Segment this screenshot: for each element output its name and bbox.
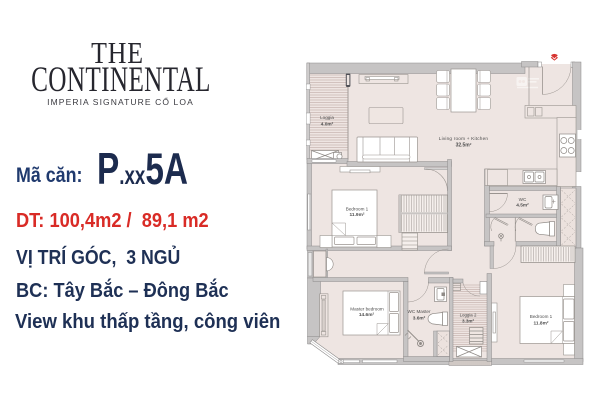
- svg-text:Loggia 2: Loggia 2: [460, 313, 477, 318]
- svg-text:3.3m²: 3.3m²: [462, 319, 474, 324]
- svg-text:Bedroom 1: Bedroom 1: [530, 314, 553, 319]
- svg-text:Master bedroom: Master bedroom: [350, 306, 384, 311]
- svg-text:11.9m²: 11.9m²: [350, 212, 365, 218]
- svg-text:Bedroom 1: Bedroom 1: [346, 207, 369, 212]
- svg-text:Living room + Kitchen: Living room + Kitchen: [439, 136, 489, 141]
- svg-text:4.5m²: 4.5m²: [516, 202, 529, 208]
- svg-text:WC Master: WC Master: [408, 309, 431, 314]
- svg-text:Loggia: Loggia: [320, 115, 334, 120]
- svg-text:32.5m²: 32.5m²: [456, 142, 472, 148]
- svg-text:14.6m²: 14.6m²: [359, 312, 375, 318]
- svg-text:4.0m²: 4.0m²: [321, 122, 334, 128]
- svg-text:WC: WC: [519, 197, 527, 202]
- svg-text:3.6m²: 3.6m²: [413, 316, 426, 322]
- svg-text:11.8m²: 11.8m²: [534, 321, 549, 327]
